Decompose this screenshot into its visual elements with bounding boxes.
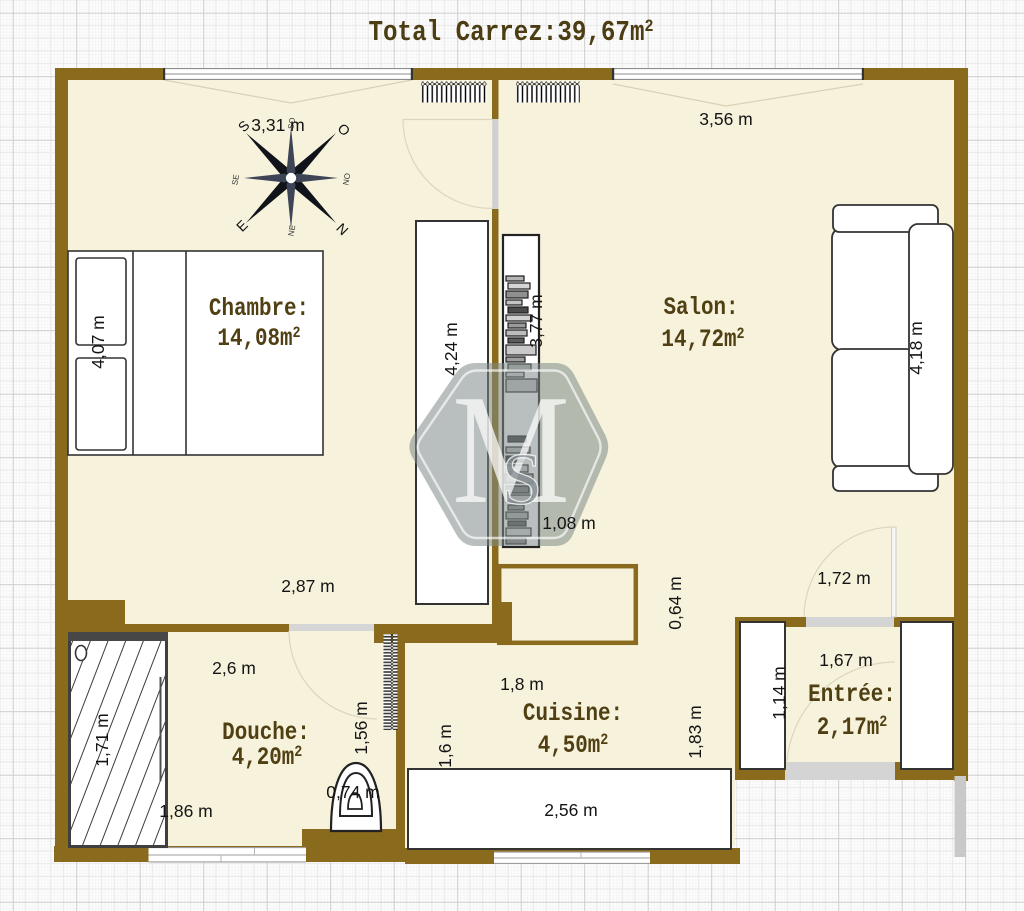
svg-text:4,07 m: 4,07 m bbox=[88, 315, 108, 369]
svg-text:4,18 m: 4,18 m bbox=[906, 321, 926, 375]
svg-text:4,50m2: 4,50m2 bbox=[538, 731, 609, 759]
svg-text:1,86 m: 1,86 m bbox=[159, 801, 213, 821]
svg-text:3,56 m: 3,56 m bbox=[699, 109, 753, 129]
svg-text:2,6 m: 2,6 m bbox=[212, 658, 256, 678]
svg-text:4,20m2: 4,20m2 bbox=[232, 743, 303, 771]
svg-text:2,56 m: 2,56 m bbox=[544, 800, 598, 820]
svg-text:2,87 m: 2,87 m bbox=[281, 576, 335, 596]
svg-text:SE: SE bbox=[230, 174, 241, 186]
svg-text:1,71 m: 1,71 m bbox=[92, 713, 112, 767]
svg-text:14,08m2: 14,08m2 bbox=[217, 324, 300, 352]
svg-text:1,8 m: 1,8 m bbox=[500, 674, 544, 694]
svg-text:1,14 m: 1,14 m bbox=[769, 666, 789, 720]
svg-text:Total Carrez:39,67m2: Total Carrez:39,67m2 bbox=[369, 16, 654, 50]
svg-text:1,72 m: 1,72 m bbox=[817, 568, 871, 588]
svg-text:Cuisine:: Cuisine: bbox=[523, 699, 623, 727]
svg-text:Chambre:: Chambre: bbox=[209, 294, 309, 322]
svg-text:NE: NE bbox=[287, 224, 298, 237]
svg-text:Salon:: Salon: bbox=[663, 293, 738, 321]
svg-text:3,77 m: 3,77 m bbox=[526, 294, 546, 348]
svg-text:0,64 m: 0,64 m bbox=[665, 576, 685, 630]
svg-text:4,24 m: 4,24 m bbox=[441, 322, 461, 376]
svg-text:Douche:: Douche: bbox=[222, 718, 310, 746]
svg-text:1,08 m: 1,08 m bbox=[542, 513, 596, 533]
svg-text:1,67 m: 1,67 m bbox=[819, 650, 873, 670]
svg-text:Entrée:: Entrée: bbox=[808, 680, 896, 708]
svg-text:1,83 m: 1,83 m bbox=[685, 705, 705, 759]
svg-text:S: S bbox=[501, 439, 542, 521]
svg-text:14,72m2: 14,72m2 bbox=[661, 325, 744, 353]
svg-text:1,56 m: 1,56 m bbox=[351, 701, 371, 755]
svg-text:2,17m2: 2,17m2 bbox=[817, 713, 888, 741]
svg-text:0,74 m: 0,74 m bbox=[326, 782, 380, 802]
svg-text:1,6 m: 1,6 m bbox=[435, 724, 455, 768]
svg-text:3,31 m: 3,31 m bbox=[251, 115, 305, 135]
